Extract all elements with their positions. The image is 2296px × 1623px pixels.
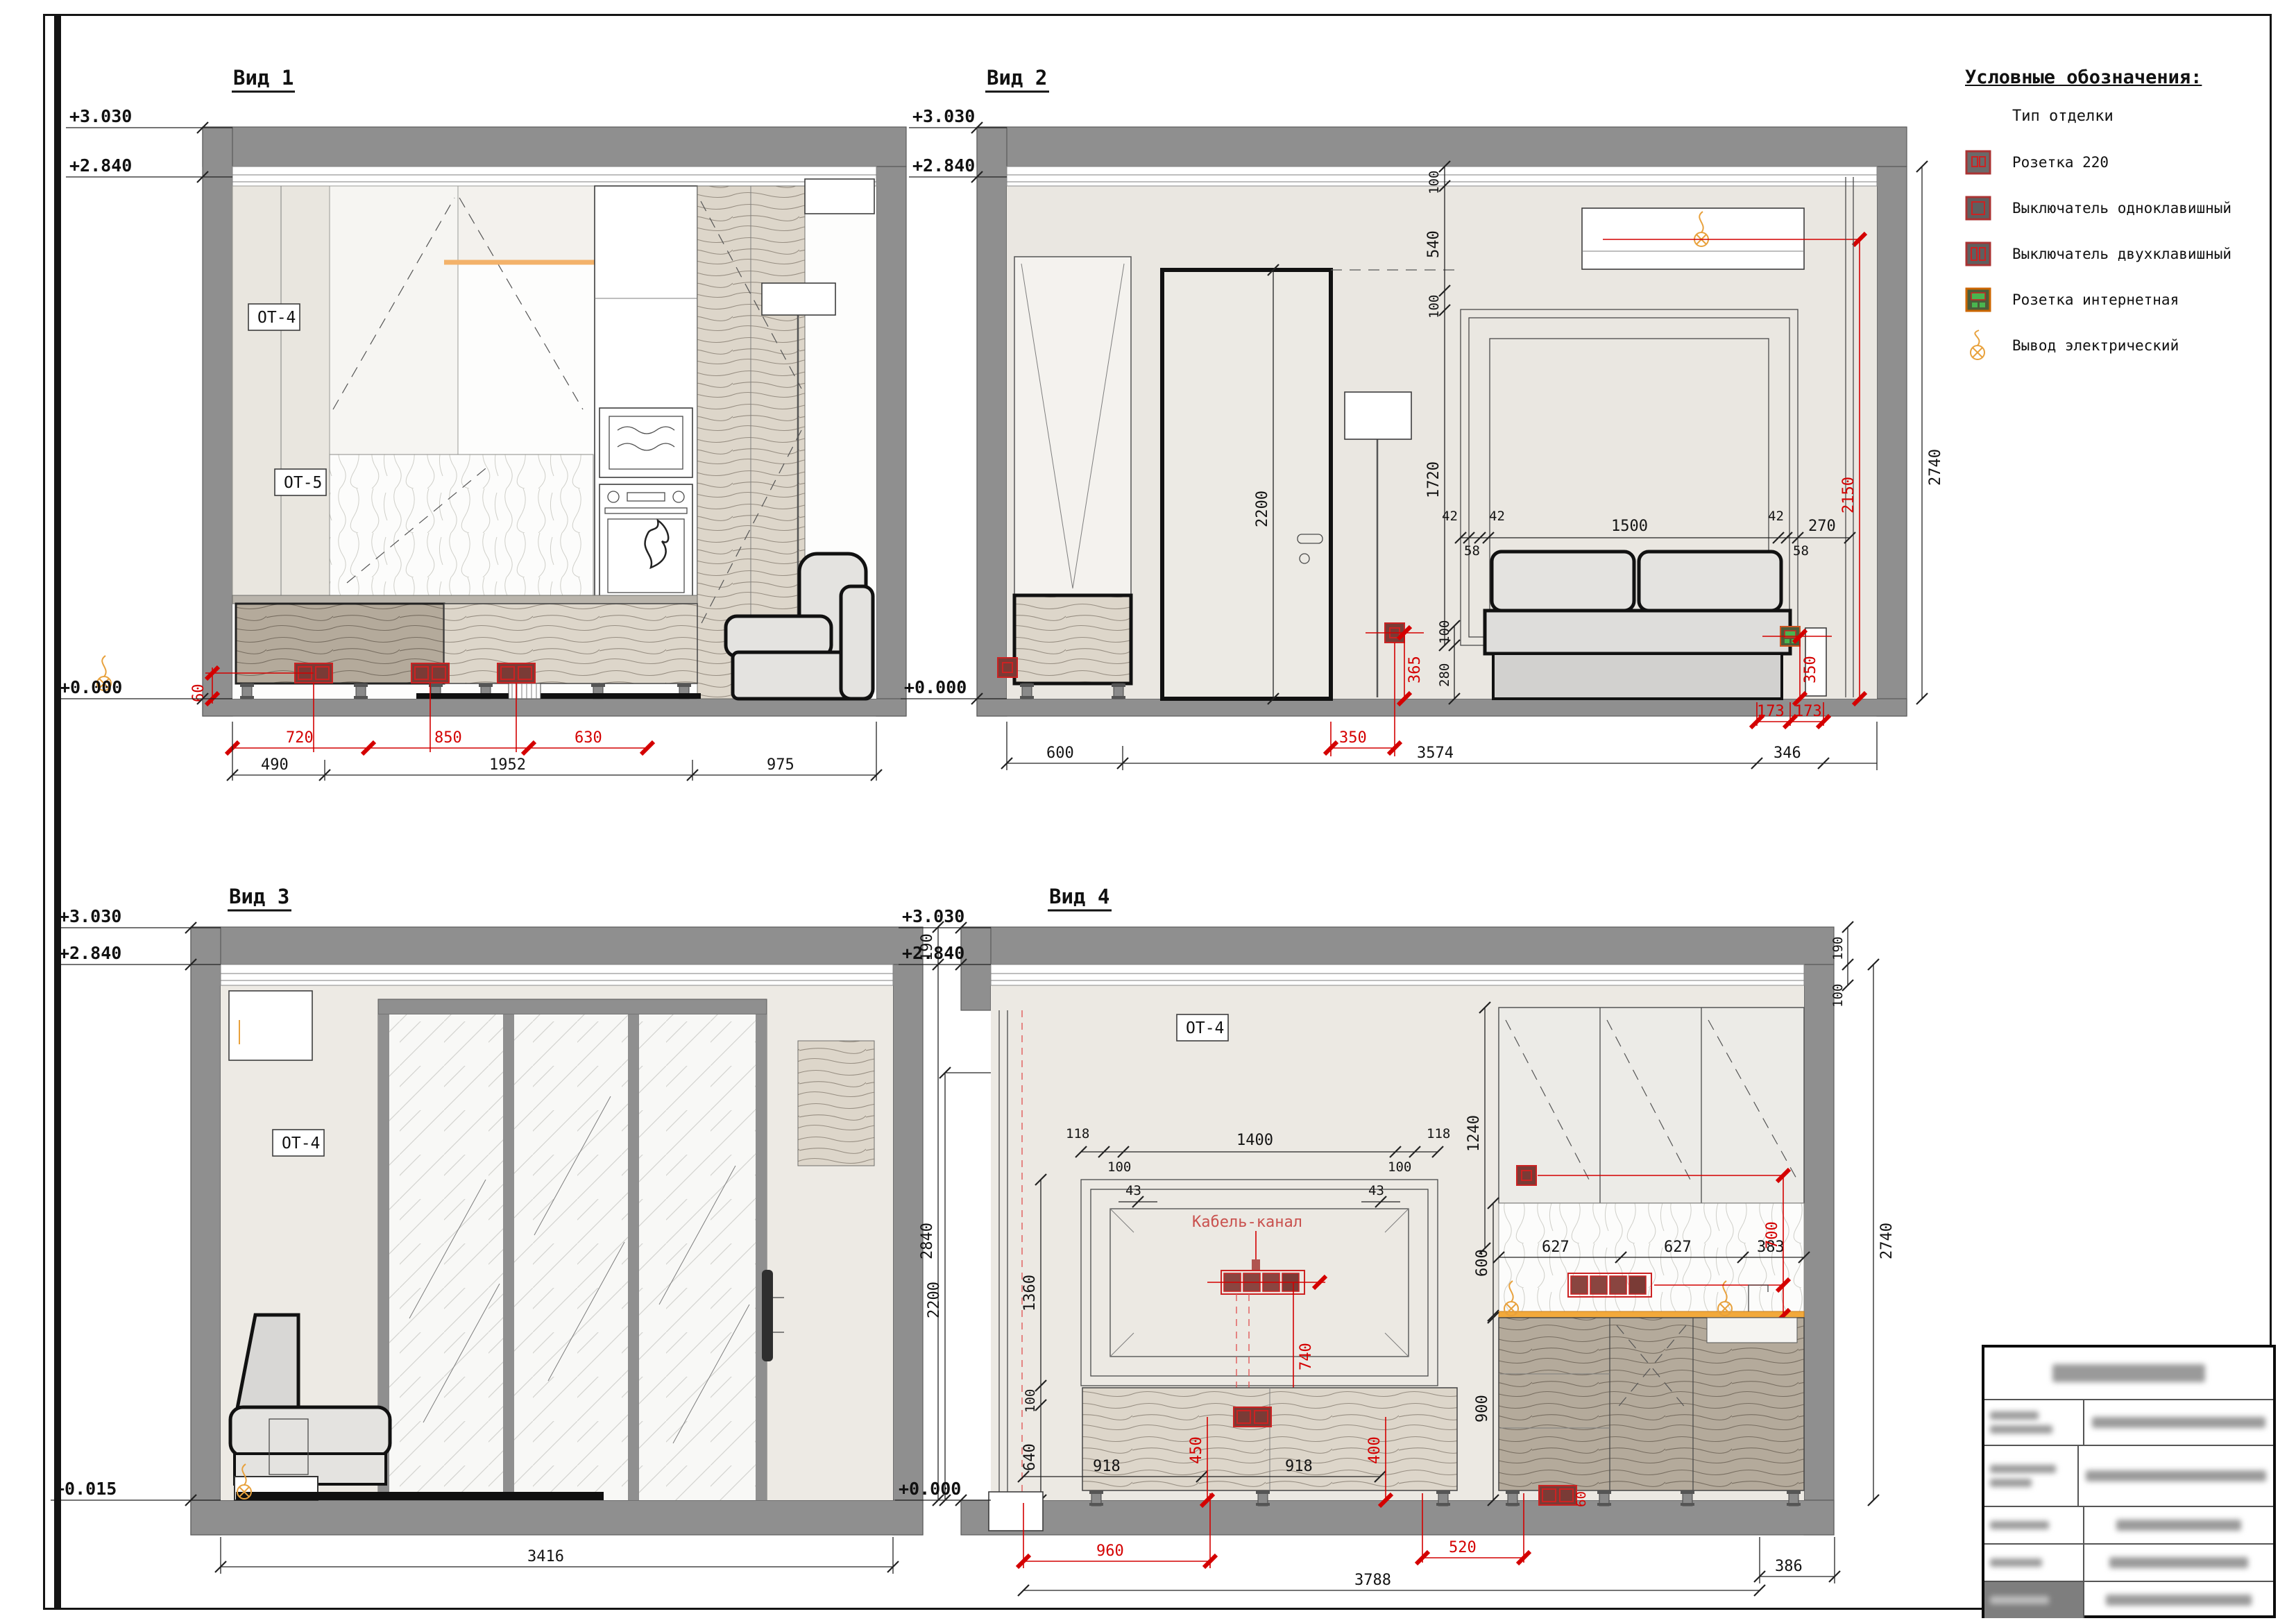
view-3-title: Вид 3	[229, 885, 289, 908]
dim-100l: 100	[1023, 1389, 1038, 1413]
tv-console	[1082, 1388, 1457, 1506]
wall-shelf	[805, 179, 874, 214]
dim-1400: 1400	[1236, 1132, 1273, 1149]
ot4-label: ОТ-4	[257, 309, 296, 327]
dim-100a: 100	[1107, 1159, 1131, 1175]
dim-350-door: 350	[1339, 729, 1367, 747]
legend-item-label: Розетка 220	[2012, 154, 2109, 171]
title-block-row	[1984, 1507, 2273, 1545]
radiator-grille	[509, 683, 541, 699]
wood-panel	[798, 1041, 874, 1166]
dim-118b: 118	[1427, 1126, 1450, 1141]
dim-60: 60	[190, 684, 207, 703]
view-1-title: Вид 1	[233, 66, 294, 90]
ot4-label: ОТ-4	[1186, 1019, 1224, 1037]
dim-43a: 43	[1125, 1183, 1141, 1198]
legend-item-label: Выключатель двухклавишный	[2012, 246, 2231, 262]
legend-item-switch-double: Выключатель двухклавишный	[1965, 240, 2263, 268]
dim-2740: 2740	[1927, 449, 1944, 486]
level-3030: +3.030	[59, 906, 121, 926]
dim-173b: 173	[1794, 703, 1822, 720]
drawing-sheet: Вид 1	[0, 0, 2296, 1623]
dim-100b: 100	[1388, 1159, 1411, 1175]
dim-190: 190	[1830, 937, 1846, 960]
level-2840: +2.840	[902, 943, 964, 963]
dim-960: 960	[1096, 1543, 1124, 1560]
level-0000: +0.000	[904, 677, 967, 697]
sheet-border-top	[43, 14, 2272, 16]
legend-subtitle: Тип отделки	[2012, 108, 2263, 125]
dim-975: 975	[767, 756, 794, 774]
outlet-internet-icon	[1965, 286, 1993, 314]
dim-400: 400	[1366, 1436, 1384, 1464]
view-2: Вид 2	[901, 66, 1944, 770]
dim-42c: 42	[1768, 509, 1784, 524]
dim-1360: 1360	[1021, 1275, 1039, 1311]
title-block	[1982, 1345, 2276, 1618]
legend: Условные обозначения: Тип отделки Розетк…	[1965, 67, 2263, 377]
dim-3416: 3416	[527, 1548, 564, 1565]
dim-850: 850	[434, 729, 462, 747]
legend-item-switch-single: Выключатель одноклавишный	[1965, 194, 2263, 222]
dim-3574: 3574	[1417, 745, 1454, 762]
dim-540: 540	[1425, 230, 1443, 258]
kitchen-upper-cabinets	[1499, 1008, 1804, 1203]
dim-365: 365	[1406, 656, 1424, 683]
sliding-glass-doors	[378, 999, 767, 1500]
legend-item-outlet-220: Розетка 220	[1965, 148, 2263, 176]
kitchen-base-cabinets: 60 900	[1474, 1312, 1804, 1507]
level-0000: +0.000	[899, 1479, 961, 1499]
legend-item-electrical-output: Вывод электрический	[1965, 332, 2263, 359]
level-2840: +2.840	[69, 155, 132, 176]
dim-43b: 43	[1368, 1183, 1384, 1198]
dim-2740: 2740	[1878, 1223, 1896, 1259]
view3-bottom-dim: 3416	[215, 1537, 899, 1574]
legend-item-label: Розетка интернетная	[2012, 291, 2179, 308]
switch-double-icon	[1965, 240, 1993, 268]
dim-627a: 627	[1542, 1239, 1570, 1256]
dim-60: 60	[1574, 1491, 1589, 1507]
sink	[1707, 1318, 1797, 1343]
legend-title: Условные обозначения:	[1965, 67, 2263, 88]
view-4-title: Вид 4	[1049, 885, 1109, 908]
dim-100a: 100	[1427, 171, 1442, 194]
level-0000: +0.000	[60, 677, 122, 697]
level-3030: +3.030	[912, 106, 975, 126]
view-3: Вид 3 ОТ-4	[51, 885, 944, 1574]
dim-900: 900	[1474, 1395, 1491, 1422]
title-block-row	[1984, 1400, 2273, 1446]
finish-label-ot4: ОТ-4	[1177, 1014, 1228, 1041]
dim-2150: 2150	[1840, 477, 1857, 513]
dim-280: 280	[1437, 663, 1452, 687]
dim-720: 720	[286, 729, 314, 747]
view-1: Вид 1	[56, 66, 906, 781]
finish-label-ot5: ОТ-5	[275, 469, 326, 495]
ot5-label: ОТ-5	[284, 474, 322, 492]
sheet-border-bottom	[43, 1608, 2272, 1610]
title-block-header	[1984, 1348, 2273, 1400]
legend-item-outlet-internet: Розетка интернетная	[1965, 286, 2263, 314]
cable-channel-label: Кабель-канал	[1192, 1214, 1302, 1231]
level-0015: +0.015	[54, 1479, 117, 1499]
dim-700: 700	[1764, 1221, 1781, 1249]
dim-490: 490	[261, 756, 289, 774]
dim-2200: 2200	[926, 1282, 943, 1318]
view4-right-dims: 190 100 2740	[1830, 921, 1896, 1506]
dim-600: 600	[1046, 745, 1074, 762]
dim-630: 630	[575, 729, 602, 747]
microwave-icon	[599, 408, 692, 477]
dim-42b: 42	[1489, 509, 1505, 524]
wall-cabinet	[229, 991, 312, 1060]
elevations-drawing: Вид 1	[0, 0, 2296, 1623]
view-2-title: Вид 2	[987, 66, 1047, 90]
dim-173a: 173	[1757, 703, 1785, 720]
dim-100c: 100	[1437, 620, 1452, 644]
electrical-output-icon	[1965, 332, 1993, 359]
legend-item-label: Вывод электрический	[2012, 337, 2179, 354]
title-block-row	[1984, 1446, 2273, 1507]
dim-118a: 118	[1066, 1126, 1089, 1141]
finish-label-ot4: ОТ-4	[273, 1130, 324, 1156]
sheet-border-left-thick	[54, 14, 61, 1610]
dim-386: 386	[1775, 1558, 1803, 1575]
sheet-border-left	[43, 14, 45, 1610]
outlet-220-icon	[1965, 148, 1993, 176]
dim-600: 600	[1474, 1249, 1491, 1277]
dim-918b: 918	[1285, 1458, 1313, 1475]
floor-lamp	[762, 283, 835, 315]
dim-2840: 2840	[919, 1223, 936, 1259]
switch-single-icon	[1965, 194, 1993, 222]
view-4: Вид 4 ОТ-4	[895, 885, 1896, 1596]
ot4-label: ОТ-4	[282, 1135, 320, 1153]
dim-640: 640	[1021, 1443, 1039, 1471]
dim-42a: 42	[1442, 509, 1458, 524]
legend-item-label: Выключатель одноклавишный	[2012, 200, 2231, 216]
dim-627b: 627	[1664, 1239, 1692, 1256]
dim-100b: 100	[1427, 295, 1442, 318]
oven-icon	[599, 484, 692, 598]
dim-1240: 1240	[1465, 1115, 1483, 1152]
dim-350-right: 350	[1802, 656, 1819, 683]
dim-520: 520	[1449, 1539, 1477, 1556]
title-block-row	[1984, 1545, 2273, 1582]
dim-1952: 1952	[489, 756, 526, 774]
dim-100r: 100	[1830, 984, 1846, 1008]
finish-label-ot4: ОТ-4	[248, 304, 300, 330]
dim-3788: 3788	[1354, 1572, 1391, 1589]
level-3030: +3.030	[902, 906, 964, 926]
level-2840: +2.840	[59, 943, 121, 963]
dim-58b: 58	[1793, 543, 1809, 559]
dim-58a: 58	[1464, 543, 1480, 559]
bed	[1485, 552, 1790, 699]
title-block-row	[1984, 1582, 2273, 1618]
dim-740: 740	[1298, 1343, 1315, 1370]
dim-450: 450	[1188, 1436, 1205, 1464]
dim-1500: 1500	[1611, 518, 1648, 535]
dim-1720: 1720	[1425, 461, 1443, 498]
level-3030: +3.030	[69, 106, 132, 126]
dim-346: 346	[1774, 745, 1801, 762]
floor-lamp	[1345, 392, 1411, 439]
level-2840: +2.840	[912, 155, 975, 176]
dim-918a: 918	[1093, 1458, 1121, 1475]
view2-cabinet	[998, 257, 1131, 699]
dim-270: 270	[1808, 518, 1836, 535]
view2-bottom-dims: 600 3574 346	[1001, 722, 1877, 770]
dim-2200: 2200	[1254, 491, 1271, 527]
